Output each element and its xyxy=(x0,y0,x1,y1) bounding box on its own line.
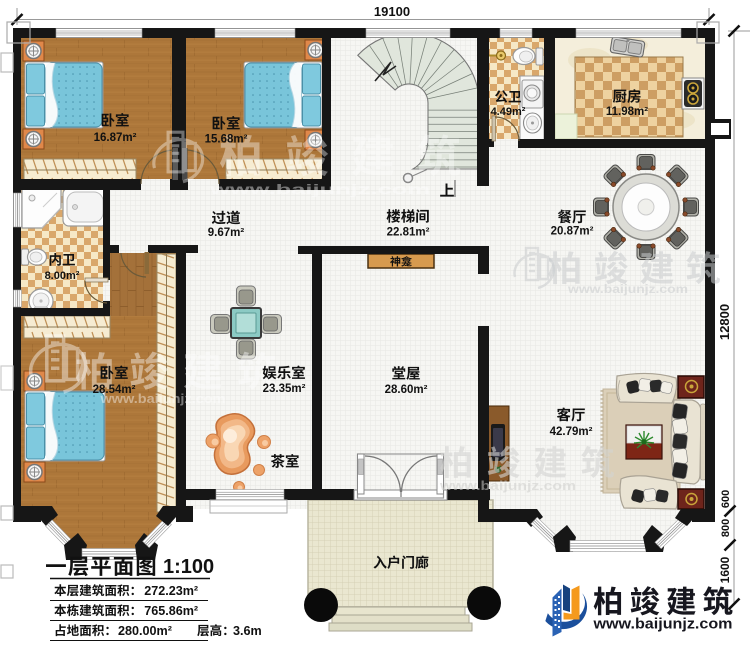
svg-text:www.baijunjz.com: www.baijunjz.com xyxy=(592,616,732,633)
svg-text:8.00m²: 8.00m² xyxy=(45,270,80,282)
svg-text:20.87m²: 20.87m² xyxy=(551,226,594,238)
svg-text:www.baijunjz.com: www.baijunjz.com xyxy=(567,282,688,296)
svg-text:11.98m²: 11.98m² xyxy=(606,106,648,118)
svg-text:765.86m²: 765.86m² xyxy=(144,604,198,618)
svg-text:www.baijunjz.com: www.baijunjz.com xyxy=(439,479,576,493)
svg-text:4.49m²: 4.49m² xyxy=(491,106,526,118)
svg-text:19100: 19100 xyxy=(374,4,410,19)
svg-text:www.baijunjz.com: www.baijunjz.com xyxy=(208,181,430,197)
svg-text:15.68m²: 15.68m² xyxy=(205,134,248,146)
svg-text:22.81m²: 22.81m² xyxy=(387,227,430,239)
svg-text:272.23m²: 272.23m² xyxy=(144,584,198,598)
svg-text:3.6m: 3.6m xyxy=(233,624,262,638)
svg-text:16.87m²: 16.87m² xyxy=(94,132,137,144)
svg-text:12800: 12800 xyxy=(717,304,732,340)
svg-text:42.79m²: 42.79m² xyxy=(550,426,593,438)
svg-text:280.00m²: 280.00m² xyxy=(118,624,172,638)
svg-text:28.54m²: 28.54m² xyxy=(93,384,136,396)
svg-text:9.67m²: 9.67m² xyxy=(208,227,245,239)
svg-text:800: 800 xyxy=(720,519,732,537)
svg-text:1:100: 1:100 xyxy=(163,556,214,578)
svg-text:600: 600 xyxy=(720,490,732,508)
svg-text:28.60m²: 28.60m² xyxy=(385,384,428,396)
svg-text:1600: 1600 xyxy=(718,556,732,583)
svg-text:23.35m²: 23.35m² xyxy=(263,383,306,395)
